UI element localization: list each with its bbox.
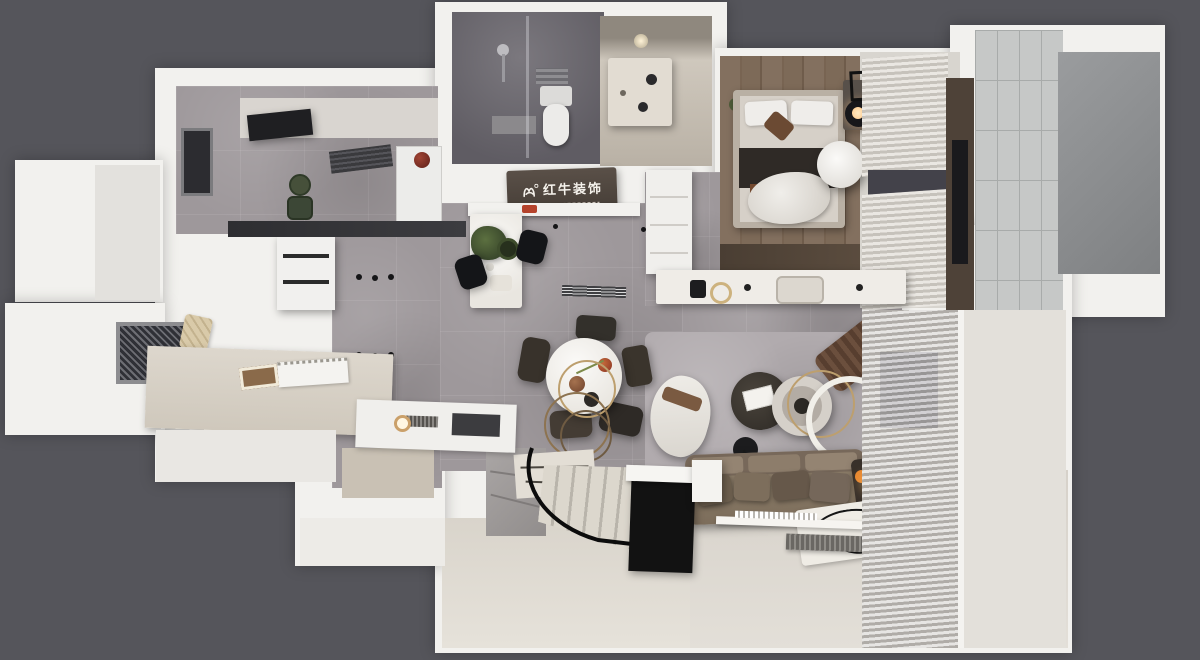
living-curtain-band xyxy=(862,310,958,648)
bull-icon xyxy=(521,182,540,201)
brand-sign-text: 红牛装饰 xyxy=(543,182,603,197)
glass-divider xyxy=(526,16,529,158)
console-basin xyxy=(776,276,824,304)
platform-shade-low xyxy=(300,518,445,566)
shelf-line xyxy=(650,224,688,226)
shelf-red-item xyxy=(522,205,537,213)
downlight xyxy=(356,274,362,280)
vanity-room xyxy=(600,16,712,166)
bath-bench xyxy=(492,116,536,134)
towel-rack xyxy=(536,68,568,84)
platform-tan-face xyxy=(342,448,434,498)
balcony-tiles xyxy=(975,30,1063,312)
downlight xyxy=(372,275,378,281)
stair-newel-pillar xyxy=(692,460,722,502)
island-tray xyxy=(490,275,512,291)
toilet-tank xyxy=(540,86,572,106)
gold-tray xyxy=(710,282,732,304)
vanity-counter xyxy=(608,58,672,126)
stair-black-panel xyxy=(628,473,695,573)
cooking-pan xyxy=(287,196,313,220)
cooking-pot xyxy=(289,174,311,196)
shelf-line xyxy=(650,196,688,198)
console-object xyxy=(856,284,863,291)
vanity-soap xyxy=(620,90,626,96)
curtain-sheer-pleats xyxy=(862,310,958,648)
floor-vent xyxy=(562,285,626,298)
tv-screen xyxy=(952,140,968,264)
sofa-pillow xyxy=(733,472,770,502)
sofa-back-cushion xyxy=(748,454,801,473)
cabinet-slot xyxy=(283,254,329,258)
sofa-back-cushion xyxy=(805,452,858,471)
wall-shade-left-wing xyxy=(95,165,160,300)
vanity-faucet xyxy=(638,102,648,112)
floor-vent-long xyxy=(786,534,871,553)
shelf-line xyxy=(650,252,688,254)
counter-dark-inset xyxy=(452,413,501,437)
stair-panel-cap xyxy=(626,465,699,484)
sofa-pillow xyxy=(809,470,852,504)
vanity-sink-drain xyxy=(646,74,657,85)
right-outer-strip xyxy=(964,310,1066,648)
kitchen-lower-cabinet xyxy=(277,236,335,310)
notebook xyxy=(277,358,349,388)
balcony-glass xyxy=(1058,52,1160,274)
shower-rail xyxy=(502,54,505,82)
toilet-bowl xyxy=(543,104,569,146)
sofa-pillow xyxy=(771,470,812,502)
bedroom-curtain xyxy=(862,53,948,177)
console-object xyxy=(744,284,751,291)
kettle xyxy=(414,152,430,168)
platform-shade xyxy=(156,430,336,482)
round-pendant-lamp xyxy=(817,141,864,188)
corridor-wardrobe xyxy=(646,170,692,274)
salad-bowl xyxy=(497,238,519,260)
apartment-floorplan-render: 红牛装饰 xyxy=(0,0,1200,660)
bed-pillow xyxy=(791,100,834,125)
coffee-machine xyxy=(690,280,706,298)
vanity-spotlight xyxy=(634,34,648,48)
kitchen-window xyxy=(181,128,213,196)
downlight xyxy=(388,274,394,280)
bathroom xyxy=(452,12,604,164)
island-glass xyxy=(486,263,494,271)
downlight xyxy=(553,224,558,229)
hall-dark-beam xyxy=(228,221,466,237)
book xyxy=(239,364,279,390)
counter-light xyxy=(394,415,411,432)
cabinet-slot xyxy=(283,280,329,284)
